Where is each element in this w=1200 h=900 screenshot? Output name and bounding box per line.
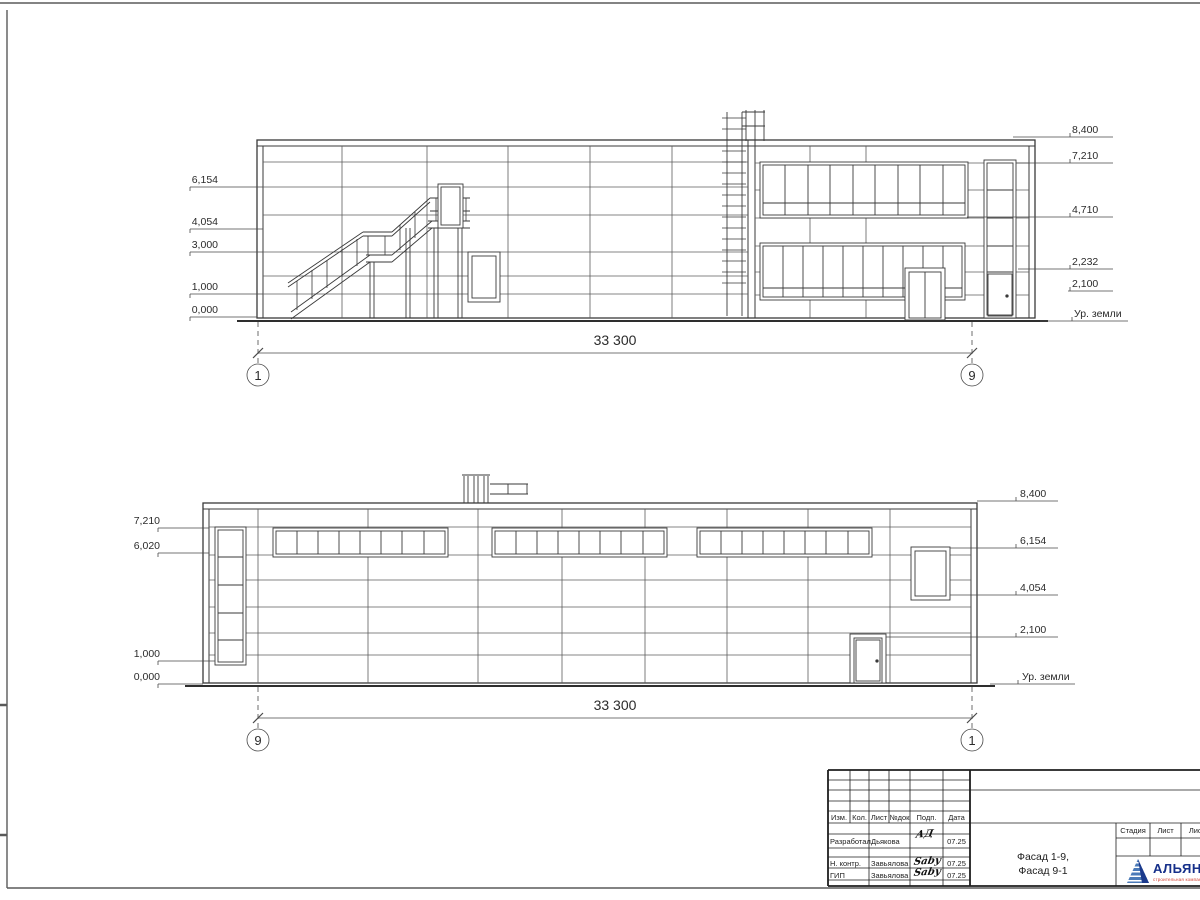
tb-role: Разработал: [830, 837, 871, 846]
tb-date: 07.25: [943, 871, 970, 880]
drawing-title-line2: Фасад 9-1: [972, 865, 1114, 877]
axis-bubble: 1: [961, 733, 983, 748]
elevation-label: 3,000: [158, 239, 218, 251]
elevation-label: 4,710: [1072, 204, 1098, 216]
elevation-label: 7,210: [1072, 150, 1098, 162]
sheet-linework: [0, 0, 1200, 900]
window-band-2: [492, 528, 667, 557]
entrance-double-door: [905, 268, 945, 320]
drawing-title-line1: Фасад 1-9,: [972, 851, 1114, 863]
axis-bubble: 9: [247, 733, 269, 748]
elevation-label: 0,000: [100, 671, 160, 683]
company-logo-text: АЛЬЯНС: [1153, 861, 1200, 876]
stair-window: [468, 252, 500, 302]
left-glazed-strip: [215, 527, 246, 665]
elevation-label: 0,000: [158, 304, 218, 316]
tb-col-ndok: №док: [888, 813, 911, 822]
sheet-frame: [0, 3, 1200, 888]
elevation-label: 6,154: [158, 174, 218, 186]
roof-ladder-top: [462, 475, 528, 503]
drawing-sheet: 6,154 4,054 3,000 1,000 0,000 8,400 7,21…: [0, 0, 1200, 900]
tb-signature: Saby: [913, 866, 942, 879]
tb-name: Дьякова: [871, 837, 900, 846]
tb-name: Завьялова: [871, 859, 908, 868]
bottom-facade-linework: [185, 475, 995, 686]
window-band-1: [273, 528, 448, 557]
elevation-label: 1,000: [100, 648, 160, 660]
tb-sheets-col: Листов: [1181, 826, 1200, 835]
elevation-label: 6,020: [100, 540, 160, 552]
tb-date: 07.25: [943, 837, 970, 846]
axis-bubble: 9: [961, 368, 983, 383]
elevation-label: 4,054: [158, 216, 218, 228]
roof-ladder: [722, 110, 765, 316]
ground-level-label: Ур. земли: [1022, 671, 1070, 683]
tb-role: ГИП: [830, 871, 845, 880]
tb-col-kol: Кол.: [850, 813, 869, 822]
elevation-label: 2,100: [1072, 278, 1098, 290]
tb-sheet-col: Лист: [1150, 826, 1181, 835]
ground-level-label: Ур. земли: [1074, 308, 1122, 320]
tb-name: Завьялова: [871, 871, 908, 880]
elevation-label: 2,232: [1072, 256, 1098, 268]
single-window: [911, 547, 950, 600]
top-facade-linework: [237, 110, 1048, 321]
elevation-label: 4,054: [1020, 582, 1046, 594]
back-door: [850, 634, 886, 683]
company-logo-icon: [1125, 859, 1151, 885]
right-glazed-strip: [984, 160, 1016, 318]
elevation-label: 8,400: [1072, 124, 1098, 136]
upper-window-band: [760, 162, 968, 218]
elevation-label: 8,400: [1020, 488, 1046, 500]
company-logo-subtitle: строительная компания: [1153, 877, 1200, 882]
elevation-label: 6,154: [1020, 535, 1046, 547]
tb-role: Н. контр.: [830, 859, 861, 868]
window-band-3: [697, 528, 872, 557]
tb-col-podp: Подп.: [910, 813, 943, 822]
elevation-label: 1,000: [158, 281, 218, 293]
dimension-text: 33 300: [565, 697, 665, 713]
tb-col-data: Дата: [943, 813, 970, 822]
tb-signature: АД: [915, 828, 934, 840]
tb-stage-col: Стадия: [1116, 826, 1150, 835]
tb-col-izm: Изм.: [828, 813, 850, 822]
axis-bubble: 1: [247, 368, 269, 383]
tb-col-list: Лист: [869, 813, 889, 822]
external-staircase: [288, 184, 470, 319]
tb-date: 07.25: [943, 859, 970, 868]
elevation-label: 7,210: [100, 515, 160, 527]
elevation-label: 2,100: [1020, 624, 1046, 636]
dimension-text: 33 300: [565, 332, 665, 348]
